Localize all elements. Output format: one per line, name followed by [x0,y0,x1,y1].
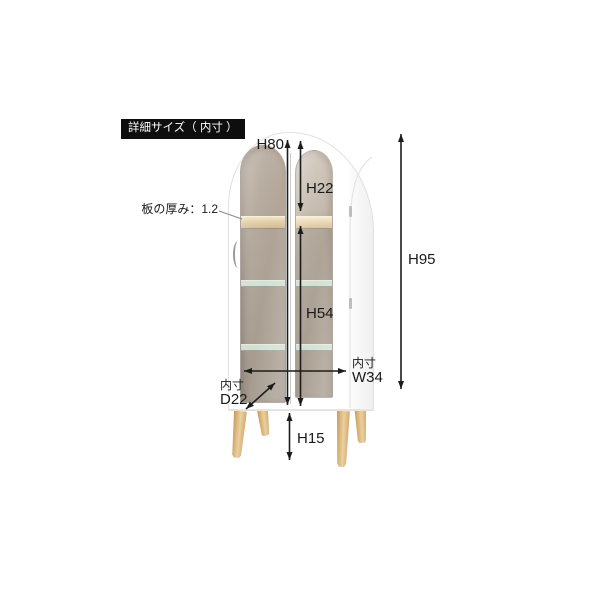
dimension-label-h95: H95 [408,252,436,268]
dimension-label-h15: H15 [297,431,325,447]
dimension-label-h80: H80 [250,137,284,153]
product-dimension-diagram: 詳細サイズ（ 内寸 ） [0,0,600,600]
dimension-label-h22: H22 [306,181,334,197]
dimension-value: D22 [220,392,248,408]
dim-line-d22 [246,383,275,409]
dimension-label-d22: 内寸 D22 [220,379,248,408]
board-thickness-leader [219,211,242,219]
dimension-label-w34: 内寸 W34 [352,357,383,386]
dimension-lines [0,0,600,600]
board-thickness-note: 板の厚み：1.2 [130,202,218,216]
dimension-value: W34 [352,370,383,386]
dimension-label-h54: H54 [306,306,334,322]
